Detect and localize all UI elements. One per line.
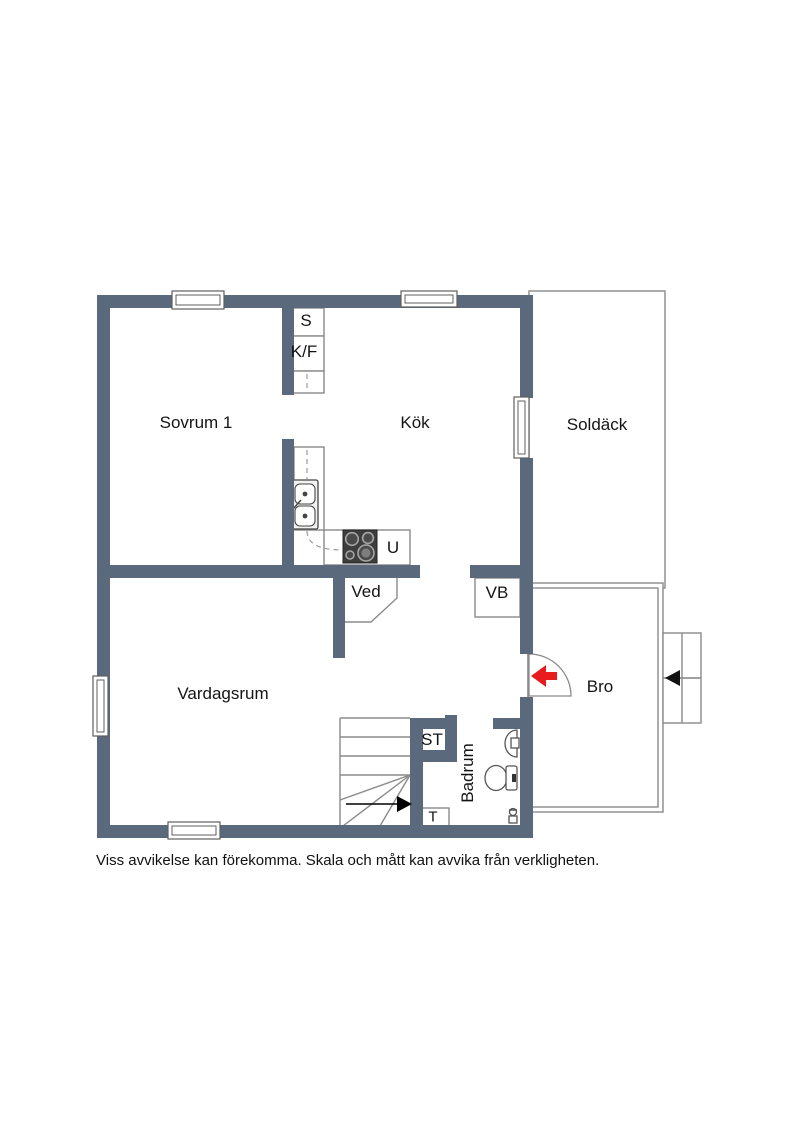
floor-plan: Sovrum 1 Kök Soldäck Vardagsrum Bro Ved … [0, 0, 800, 1131]
room-label-sovrum1: Sovrum 1 [160, 413, 233, 433]
window-livingroom-bottom [168, 822, 220, 839]
room-label-kok: Kök [400, 413, 429, 433]
room-label-bro: Bro [587, 677, 613, 697]
fixture-label-st: ST [421, 730, 443, 750]
fixture-label-u: U [387, 538, 399, 558]
toilet [485, 766, 517, 791]
window-livingroom-left [93, 676, 108, 736]
floor-plan-drawing [0, 0, 800, 1131]
room-label-soldack: Soldäck [567, 415, 627, 435]
fixture-label-s: S [300, 311, 311, 331]
water-tap [509, 809, 517, 824]
porch-outline [528, 583, 663, 812]
sun-deck-outline [529, 291, 665, 588]
kitchen-sink [292, 480, 318, 529]
disclaimer-text: Viss avvikelse kan förekomma. Skala och … [96, 852, 599, 869]
fixture-label-t: T [428, 809, 437, 826]
window-kitchen-top [401, 291, 457, 307]
window-bedroom-top [172, 291, 224, 309]
fixture-label-kf: K/F [291, 342, 317, 362]
stove [343, 530, 377, 563]
fixture-label-vb: VB [486, 583, 509, 603]
room-label-vardagsrum: Vardagsrum [177, 684, 268, 704]
room-label-badrum: Badrum [458, 743, 478, 803]
room-label-ved: Ved [351, 582, 380, 602]
bathroom-sink [505, 730, 519, 757]
window-kitchen-right [514, 397, 529, 458]
